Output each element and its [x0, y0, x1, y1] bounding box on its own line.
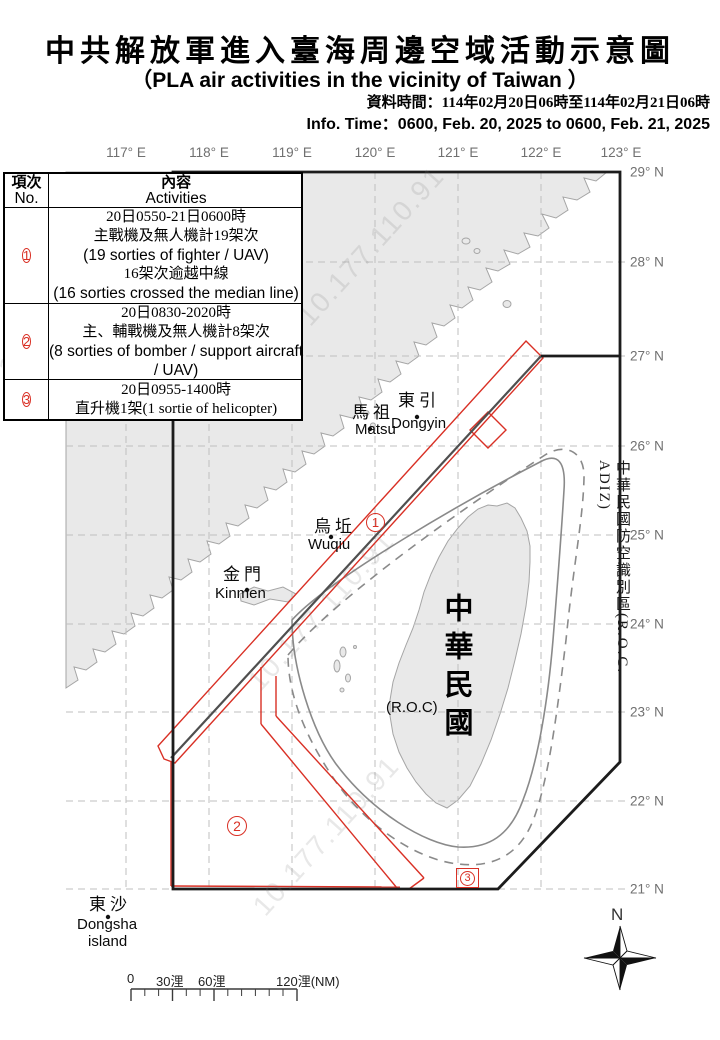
row-1-line: 20日0550-21日0600時: [106, 208, 246, 227]
lat-label: 29° N: [630, 165, 664, 180]
compass-rose-icon: [584, 926, 656, 990]
lat-label: 24° N: [630, 617, 664, 632]
activity-area-1-notch: [470, 412, 506, 448]
dongsha-label-en: Dongsha: [77, 917, 137, 932]
page-subtitle: （PLA air activities in the vicinity of T…: [0, 64, 720, 94]
info-time-en: Info. Time：0600, Feb. 20, 2025 to 0600, …: [307, 110, 710, 134]
lon-label: 117° E: [106, 145, 146, 160]
table-header-activities-zh: 內容: [161, 175, 191, 191]
table-row-3-num: 3: [5, 380, 49, 419]
lat-label: 27° N: [630, 349, 664, 364]
dongsha-island-label-en: island: [88, 934, 127, 949]
lon-label: 122° E: [521, 145, 562, 160]
row-2-line: 主、輔戰機及無人機計8架次: [82, 323, 270, 342]
dongsha-label-zh: 東沙: [89, 896, 131, 913]
lat-label: 21° N: [630, 882, 664, 897]
lat-label: 23° N: [630, 705, 664, 720]
area-marker-3: 3: [460, 871, 475, 886]
table-row-1-content: 20日0550-21日0600時 主戰機及無人機計19架次 (19 sortie…: [49, 208, 303, 304]
scale-60-label: 60浬: [198, 971, 225, 990]
compass-north-label: N: [611, 905, 623, 925]
lat-label: 25° N: [630, 528, 664, 543]
table-header-activities-en: Activities: [145, 191, 206, 207]
row-2-line: (8 sorties of bomber / support aircraft: [49, 342, 303, 361]
row-3-line: 20日0955-1400時: [121, 381, 231, 400]
row-1-line: (19 sorties of fighter / UAV): [83, 246, 269, 265]
area-marker-2: 2: [227, 816, 247, 836]
lon-label: 123° E: [601, 145, 642, 160]
table-header-no-zh: 項次: [11, 175, 41, 191]
row-3-line: 直升機1架(1 sortie of helicopter): [75, 400, 277, 419]
lon-label: 118° E: [189, 145, 229, 160]
pla-activity-map-page: 10.177.110.91 10.177.110.91 10.177.110.9…: [0, 0, 720, 1040]
activity-corridor-end-cap: [409, 878, 424, 889]
table-row-3-content: 20日0955-1400時 直升機1架(1 sortie of helicopt…: [49, 380, 303, 419]
row-1-circled-number: 1: [22, 248, 31, 263]
table-row-1-num: 1: [5, 208, 49, 304]
wuqiu-label-zh: 烏坵: [314, 518, 356, 535]
row-1-line: (16 sorties crossed the median line): [53, 284, 299, 303]
lon-label: 120° E: [355, 145, 396, 160]
lon-label: 121° E: [438, 145, 479, 160]
row-2-line: / UAV): [154, 361, 199, 380]
area-marker-3-box: 3: [456, 868, 479, 888]
row-2-line: 20日0830-2020時: [121, 304, 231, 323]
table-row-2-content: 20日0830-2020時 主、輔戰機及無人機計8架次 (8 sorties o…: [49, 304, 303, 380]
roc-title-vertical: 中華民國: [435, 593, 477, 758]
wuqiu-label-en: Wuqiu: [308, 537, 350, 552]
table-header-no: 項次 No.: [5, 174, 49, 208]
area-marker-1: 1: [366, 513, 385, 532]
activities-table: 項次 No. 內容 Activities 1 20日0550-21日0600時 …: [3, 172, 303, 421]
scale-30-label: 30浬: [156, 971, 183, 990]
lon-label: 119° E: [272, 145, 312, 160]
roc-paren-label: (R.O.C): [386, 700, 438, 715]
lat-label: 28° N: [630, 255, 664, 270]
row-2-circled-number: 2: [22, 334, 31, 349]
table-row-2-num: 2: [5, 304, 49, 380]
dongyin-label-zh: 東引: [398, 392, 440, 409]
table-header-no-en: No.: [14, 191, 38, 207]
kinmen-label-en: Kinmen: [215, 586, 266, 601]
info-time-zh: 資料時間：114年02月20日06時至114年02月21日06時: [367, 91, 710, 112]
row-3-circled-number: 3: [22, 392, 31, 407]
row-1-line: 16架次逾越中線: [124, 265, 229, 284]
scale-120-label: 120浬(NM): [276, 971, 340, 990]
scale-bar: [131, 989, 297, 1001]
row-1-line: 主戰機及無人機計19架次: [94, 227, 259, 246]
dongyin-label-en: Dongyin: [391, 416, 446, 431]
kinmen-label-zh: 金門: [223, 566, 265, 583]
adiz-label-vertical: 中華民國防空識別區(R.O.C. ADIZ): [595, 460, 633, 720]
scale-0-label: 0: [127, 971, 134, 986]
matsu-label-zh: 馬祖: [352, 404, 394, 421]
table-header-activities: 內容 Activities: [49, 174, 303, 208]
matsu-label-en: Matsu: [355, 422, 396, 437]
lat-label: 26° N: [630, 439, 664, 454]
lat-label: 22° N: [630, 794, 664, 809]
